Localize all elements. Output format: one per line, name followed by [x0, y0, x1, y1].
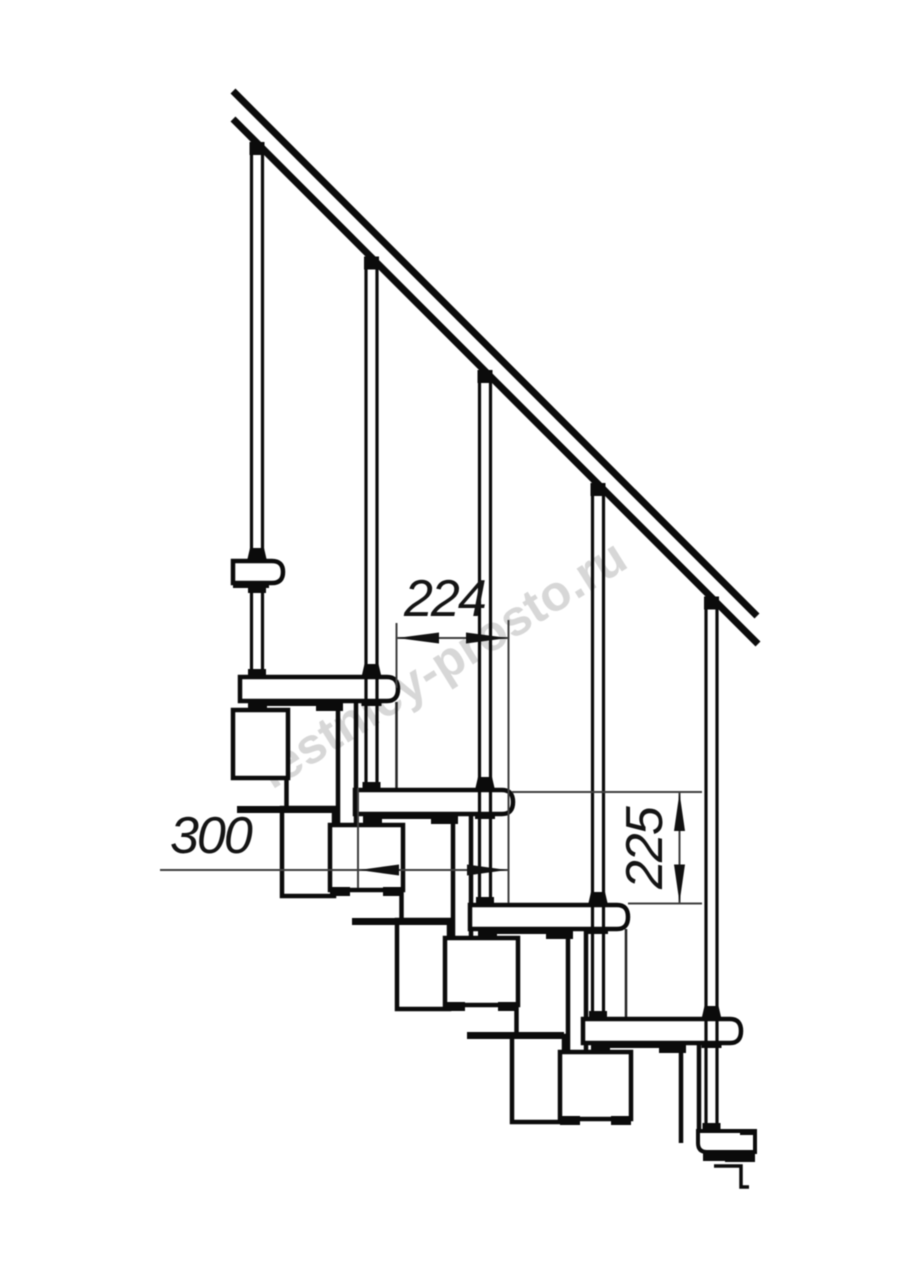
upper-bracket: [233, 561, 283, 593]
staircase-technical-drawing: lestnicy-prosto.ru: [0, 0, 914, 1280]
wall-module-box: [233, 710, 288, 778]
baluster-1: [252, 146, 263, 677]
tread-1: [240, 677, 398, 701]
baluster-5: [706, 601, 717, 1131]
handrail: [233, 91, 758, 644]
dimension-rise-label: 225: [616, 805, 674, 890]
dimension-run-label: 224: [403, 570, 485, 628]
watermark-text: lestnicy-prosto.ru: [248, 528, 636, 799]
lower-bracket: [698, 1131, 757, 1187]
screenshot-canvas: lestnicy-prosto.ru: [0, 0, 914, 1280]
dimension-rise-225: 225: [512, 792, 702, 904]
dimension-depth-label: 300: [170, 807, 253, 865]
